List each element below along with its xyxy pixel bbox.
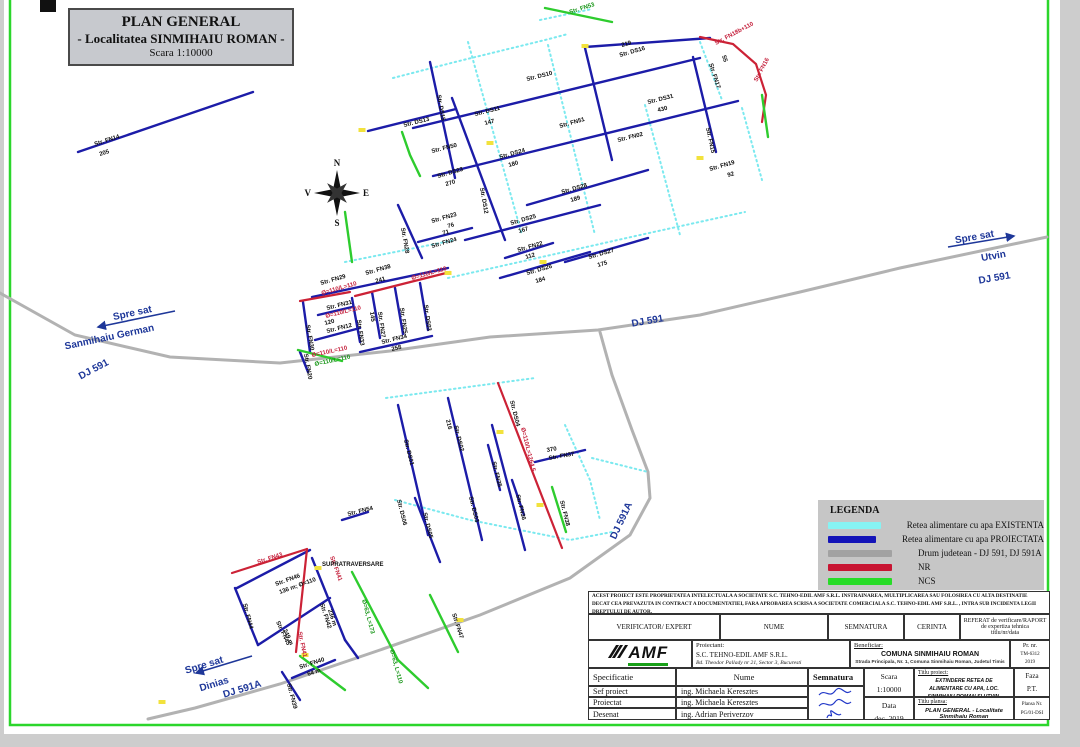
project-number-cell: Pr. nr. TM-6312 2019 bbox=[1010, 640, 1050, 668]
proiectant-address: Bd. Theodor Pallady nr 21, Sector 3, Buc… bbox=[696, 660, 846, 668]
titlu-proiect-label: Titlu proiect: bbox=[918, 670, 948, 676]
titlu-plansa-cell: Titlu plansa: PLAN GENERAL - Localitate … bbox=[914, 697, 1014, 720]
pr-nr-label: Pr. nr. bbox=[1011, 642, 1049, 651]
company-logo-cell: AMF bbox=[588, 640, 692, 668]
faza-value: P.T. bbox=[1015, 683, 1049, 696]
semnatura2-header: Semnatura bbox=[808, 668, 864, 686]
beneficiar-name: COMUNA SINMIHAIU ROMAN bbox=[854, 650, 1006, 659]
nume2-header: Nume bbox=[676, 668, 808, 686]
referat-line2: titlu/nr/data bbox=[991, 630, 1019, 636]
signature-scribbles bbox=[815, 687, 859, 720]
legend-item-label: NR bbox=[918, 562, 931, 572]
legend-item-label: NCS bbox=[918, 576, 936, 586]
plan-title: PLAN GENERAL bbox=[70, 14, 292, 31]
titlu-proiect-cell: Titlu proiect: EXTINDERE RETEA DE ALIMEN… bbox=[914, 668, 1014, 697]
semnatura-header: SEMNATURA bbox=[828, 614, 904, 640]
referat-cell: REFERAT de verificare/RAPORT de expertiz… bbox=[960, 614, 1050, 640]
row-desenat: Desenat bbox=[588, 708, 676, 720]
plansa-value: PG/01-DSI bbox=[1015, 709, 1049, 718]
plan-title-box: PLAN GENERAL - Localitatea SINMIHAIU ROM… bbox=[68, 8, 294, 66]
legend-color-bar bbox=[828, 564, 892, 571]
copyright-disclaimer: ACEST PROIECT ESTE PROPRIETATEA INTELECT… bbox=[588, 591, 1050, 614]
titlu-plansa-label: Titlu plansa: bbox=[918, 699, 947, 705]
street-label: SUPRATRAVERSARE bbox=[322, 562, 383, 568]
pr-nr-year: 2019 bbox=[1011, 659, 1049, 667]
data-cell: Data dec. 2019 bbox=[864, 697, 914, 720]
data-value: dec. 2019 bbox=[865, 713, 913, 720]
legend-items: Retea alimentare cu apa EXISTENTARetea a… bbox=[818, 518, 1044, 588]
yellow-highlight bbox=[537, 503, 544, 507]
title-block: ACEST PROIECT ESTE PROPRIETATEA INTELECT… bbox=[588, 591, 1050, 720]
row-proiectat: Proiectat bbox=[588, 697, 676, 708]
yellow-highlight bbox=[487, 141, 494, 145]
plan-sheet: Str. FN14205Str. DS15Str. DS13Str. FN50S… bbox=[0, 0, 1080, 747]
plansa-label: Plansa Nr. bbox=[1015, 700, 1049, 709]
legend-item: Drum judetean - DJ 591, DJ 591A bbox=[818, 546, 1044, 560]
yellow-highlight bbox=[359, 128, 366, 132]
compass-letter-v: V bbox=[305, 188, 312, 198]
beneficiar-label: Beneficiar: bbox=[854, 642, 1006, 650]
legend-item: NCS bbox=[818, 574, 1044, 588]
plansa-nr-cell: Plansa Nr. PG/01-DSI bbox=[1014, 697, 1050, 720]
faza-label: Faza bbox=[1015, 670, 1049, 683]
plan-locality: - Localitatea SINMIHAIU ROMAN - bbox=[70, 31, 292, 47]
row-proiectat-name: ing. Michaela Keresztes bbox=[676, 697, 808, 708]
referat-line1: REFERAT de verificare/RAPORT de expertiz… bbox=[961, 618, 1049, 630]
faza-cell: Faza P.T. bbox=[1014, 668, 1050, 697]
legend: LEGENDA Retea alimentare cu apa EXISTENT… bbox=[818, 500, 1044, 590]
legend-item: Retea alimentare cu apa PROIECTATA bbox=[818, 532, 1044, 546]
yellow-highlight bbox=[697, 156, 704, 160]
titlu-plansa-value: PLAN GENERAL - Localitate Sinmihaiu Roma… bbox=[918, 708, 1010, 720]
yellow-highlight bbox=[159, 700, 166, 704]
legend-item-label: Retea alimentare cu apa PROIECTATA bbox=[902, 534, 1044, 544]
logo-text: AMF bbox=[628, 643, 668, 666]
proiectant-label: Proiectant: bbox=[696, 642, 846, 651]
beneficiar-cell: Beneficiar: COMUNA SINMIHAIU ROMAN Strad… bbox=[850, 640, 1010, 668]
data-label: Data bbox=[865, 700, 913, 713]
legend-color-bar bbox=[828, 536, 876, 543]
nume-header: NUME bbox=[720, 614, 828, 640]
compass-letter-e: E bbox=[363, 188, 369, 198]
scara-value: 1:10000 bbox=[865, 684, 913, 697]
proiectant-cell: Proiectant: S.C. TEHNO-EDIL AMF S.R.L. B… bbox=[692, 640, 850, 668]
legend-color-bar bbox=[828, 522, 881, 529]
logo-stripes-icon bbox=[612, 645, 626, 663]
legend-color-bar bbox=[828, 578, 892, 585]
legend-item-label: Retea alimentare cu apa EXISTENTA bbox=[907, 520, 1044, 530]
legend-item: Retea alimentare cu apa EXISTENTA bbox=[818, 518, 1044, 532]
cerinta-header: CERINTA bbox=[904, 614, 960, 640]
legend-color-bar bbox=[828, 550, 892, 557]
compass-letter-s: S bbox=[334, 218, 339, 228]
yellow-highlight bbox=[315, 566, 322, 570]
row-desenat-name: ing. Adrian Periverzov bbox=[676, 708, 808, 720]
proiectant-name: S.C. TEHNO-EDIL AMF S.R.L. bbox=[696, 651, 846, 660]
scara-cell: Scara 1:10000 bbox=[864, 668, 914, 697]
plan-scale: Scara 1:10000 bbox=[70, 47, 292, 59]
row-sef-proiect: Sef proiect bbox=[588, 686, 676, 697]
yellow-highlight bbox=[582, 44, 589, 48]
specificatie-header: Specificatie bbox=[588, 668, 676, 686]
yellow-highlight bbox=[497, 430, 504, 434]
legend-title: LEGENDA bbox=[830, 505, 1044, 516]
corner-mark bbox=[40, 0, 56, 12]
yellow-highlight bbox=[540, 260, 547, 264]
titlu-proiect-value: EXTINDERE RETEA DE ALIMENTARE CU APA, LO… bbox=[918, 678, 1010, 697]
legend-item: NR bbox=[818, 560, 1044, 574]
row-sef-proiect-name: ing. Michaela Keresztes bbox=[676, 686, 808, 697]
signature-column bbox=[808, 686, 864, 720]
amf-logo: AMF bbox=[589, 641, 691, 667]
beneficiar-address: Strada Principala, Nr. 1, Comuna Sinmiha… bbox=[854, 660, 1006, 666]
compass-letter-n: N bbox=[334, 158, 341, 168]
verificator-cell: VERIFICATOR/ EXPERT bbox=[588, 614, 720, 640]
scara-label: Scara bbox=[865, 671, 913, 684]
legend-item-label: Drum judetean - DJ 591, DJ 591A bbox=[918, 548, 1042, 558]
pr-nr-value: TM-6312 bbox=[1011, 651, 1049, 659]
